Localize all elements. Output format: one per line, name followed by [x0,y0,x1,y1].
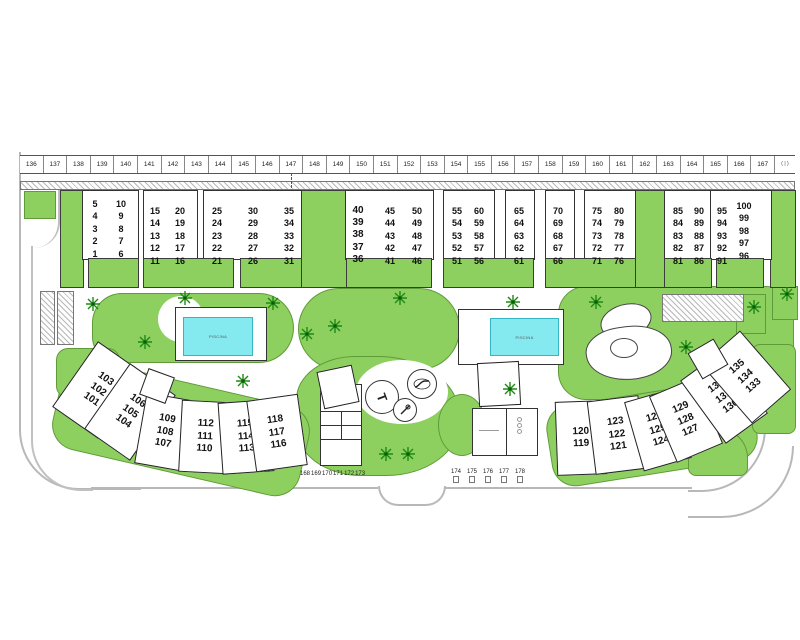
parking-number: 178 [512,469,528,475]
unit-number: 98 [733,225,755,237]
unit-number: 87 [688,242,710,254]
unit-number: 88 [688,230,710,242]
unit-number: 91 [711,255,733,267]
unit-number: 75 [586,205,608,217]
unit-number: 28 [242,230,264,242]
unit-number: 25 [206,205,228,217]
unit-number: 92 [711,242,733,254]
unit-number: 70 [547,205,569,217]
unit-column: 3534333231 [278,205,300,267]
marker-icon [453,476,459,483]
unit-number: 13 [144,230,166,242]
unit-column: 3029282726 [242,205,264,267]
unit-column: 2019181716 [169,205,191,267]
unit-number: 76 [608,255,630,267]
unit-column: 8584838281 [667,205,689,267]
parking-number: 175 [464,469,480,475]
unit-number: 38 [347,229,369,241]
unit-number: 68 [547,230,569,242]
unit-number: 82 [667,242,689,254]
unit-number: 95 [711,205,733,217]
unit-column: 10099989796 [733,200,755,262]
unit-column: 6059585756 [468,205,490,267]
unit-column: 9089888786 [688,205,710,267]
parking-spot: 175 [464,469,480,483]
unit-number: 8 [110,223,132,235]
parking-number: 170 [322,471,332,477]
unit-number: 85 [667,205,689,217]
unit-number: 10 [110,198,132,210]
unit-number: 79 [608,217,630,229]
parking-number: 177 [496,469,512,475]
unit-number: 33 [278,230,300,242]
unit-number: 97 [733,237,755,249]
unit-column: 4039383736 [347,205,369,266]
unit-number: 80 [608,205,630,217]
unit-number: 2 [84,235,106,247]
unit-number: 26 [242,255,264,267]
spot-numbers: 174175176177178 [448,469,528,483]
unit-number: 23 [206,230,228,242]
parking-spot: 176 [480,469,496,483]
unit-column: 8079787776 [608,205,630,267]
unit-number: 54 [446,217,468,229]
unit-number: 31 [278,255,300,267]
unit-number: 61 [508,255,530,267]
unit-number: 66 [547,255,569,267]
unit-column: 9594939291 [711,205,733,267]
unit-number: 65 [508,205,530,217]
unit-number: 90 [688,205,710,217]
unit-number: 19 [169,217,191,229]
unit-number: 18 [169,230,191,242]
unit-number: 67 [547,242,569,254]
unit-number: 9 [110,210,132,222]
unit-number: 89 [688,217,710,229]
unit-number: 56 [468,255,490,267]
unit-column: 4544434241 [379,205,401,267]
unit-number: 78 [608,230,630,242]
unit-number: 41 [379,255,401,267]
unit-number: 21 [206,255,228,267]
unit-number: 55 [446,205,468,217]
unit-number: 73 [586,230,608,242]
unit-number: 1 [84,248,106,260]
parking-spot: 178 [512,469,528,483]
unit-number: 20 [169,205,191,217]
unit-number: 52 [446,242,468,254]
unit-column: 7069686766 [547,205,569,267]
unit-number: 84 [667,217,689,229]
unit-number: 24 [206,217,228,229]
unit-number: 14 [144,217,166,229]
unit-number: 17 [169,242,191,254]
unit-column: 6564636261 [508,205,530,267]
unit-number: 40 [347,205,369,217]
unit-number: 53 [446,230,468,242]
marker-icon [501,476,507,483]
unit-number: 63 [508,230,530,242]
unit-number: 48 [406,230,428,242]
unit-number: 51 [446,255,468,267]
unit-number: 37 [347,242,369,254]
parking-number: 171 [333,471,343,477]
unit-number: 46 [406,255,428,267]
unit-number: 22 [206,242,228,254]
unit-number: 86 [688,255,710,267]
unit-number: 69 [547,217,569,229]
unit-number: 47 [406,242,428,254]
marker-icon [517,476,523,483]
parking-spot: 177 [496,469,512,483]
unit-number: 44 [379,217,401,229]
unit-number: 11 [144,255,166,267]
unit-number: 27 [242,242,264,254]
unit-number: 35 [278,205,300,217]
unit-number: 96 [733,250,755,262]
unit-number: 71 [586,255,608,267]
parking-number: 174 [448,469,464,475]
unit-number: 42 [379,242,401,254]
top-units-layer: 5432110987615141312112019181716252423222… [0,0,800,640]
unit-number: 5 [84,198,106,210]
unit-number: 64 [508,217,530,229]
unit-number: 15 [144,205,166,217]
unit-column: 109876 [110,198,132,260]
unit-number: 7 [110,235,132,247]
parking-number: 176 [480,469,496,475]
unit-column: 7574737271 [586,205,608,267]
unit-number: 12 [144,242,166,254]
parking-spot: 174 [448,469,464,483]
unit-column: 5049484746 [406,205,428,267]
parking-number: 173 [355,471,365,477]
unit-number: 49 [406,217,428,229]
unit-number: 34 [278,217,300,229]
unit-number: 93 [711,230,733,242]
unit-number: 58 [468,230,490,242]
unit-number: 4 [84,210,106,222]
unit-number: 50 [406,205,428,217]
unit-column: 54321 [84,198,106,260]
parking-number: 172 [344,471,354,477]
unit-number: 94 [711,217,733,229]
unit-column: 1514131211 [144,205,166,267]
parking-number: 168 [300,471,310,477]
unit-number: 6 [110,248,132,260]
curb-numbers: 168169170171172173 [300,471,366,477]
unit-number: 62 [508,242,530,254]
unit-number: 32 [278,242,300,254]
unit-number: 39 [347,217,369,229]
marker-icon [469,476,475,483]
site-plan: 1361371381391401411421431441451461471481… [0,0,800,640]
unit-number: 60 [468,205,490,217]
unit-number: 36 [347,254,369,266]
unit-number: 43 [379,230,401,242]
unit-number: 77 [608,242,630,254]
unit-number: 45 [379,205,401,217]
unit-column: 2524232221 [206,205,228,267]
unit-column: 5554535251 [446,205,468,267]
unit-number: 72 [586,242,608,254]
unit-number: 57 [468,242,490,254]
marker-icon [485,476,491,483]
unit-number: 81 [667,255,689,267]
unit-number: 100 [733,200,755,212]
unit-number: 99 [733,212,755,224]
unit-number: 29 [242,217,264,229]
unit-number: 16 [169,255,191,267]
parking-number: 169 [311,471,321,477]
unit-number: 3 [84,223,106,235]
unit-number: 83 [667,230,689,242]
unit-number: 30 [242,205,264,217]
unit-number: 74 [586,217,608,229]
unit-number: 59 [468,217,490,229]
